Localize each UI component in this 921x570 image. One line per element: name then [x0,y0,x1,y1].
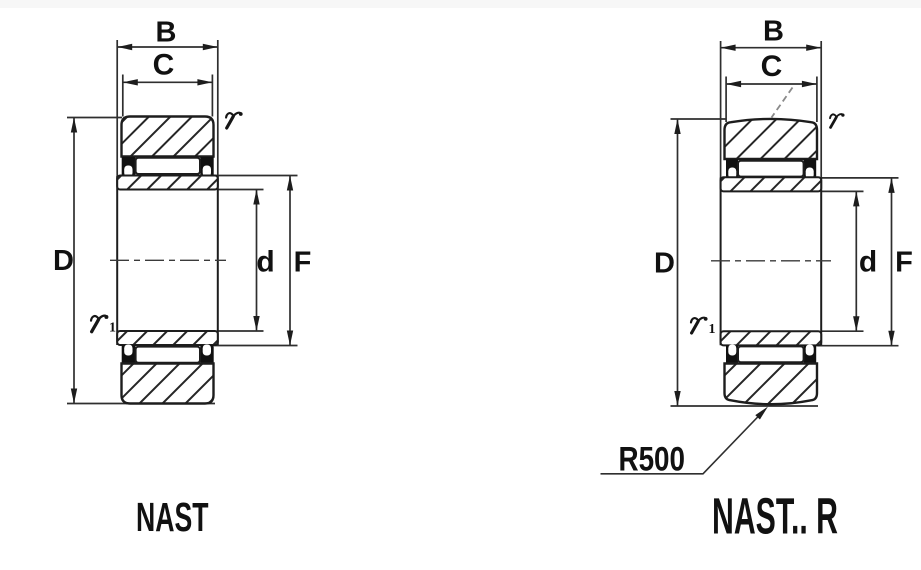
svg-text:d: d [859,245,877,278]
svg-text:R500: R500 [619,440,686,478]
svg-text:C: C [761,50,783,83]
svg-text:D: D [654,248,675,280]
svg-text:NAST: NAST [136,494,209,540]
svg-text:B: B [763,15,784,47]
svg-text:F: F [294,247,312,279]
svg-text:d: d [256,246,274,279]
svg-text:F: F [895,246,913,278]
svg-text:C: C [153,48,175,81]
svg-text:B: B [156,17,177,49]
svg-text:NAST.. R: NAST.. R [712,488,838,545]
svg-text:1: 1 [709,322,716,337]
svg-text:D: D [53,245,74,277]
svg-text:1: 1 [109,321,116,336]
